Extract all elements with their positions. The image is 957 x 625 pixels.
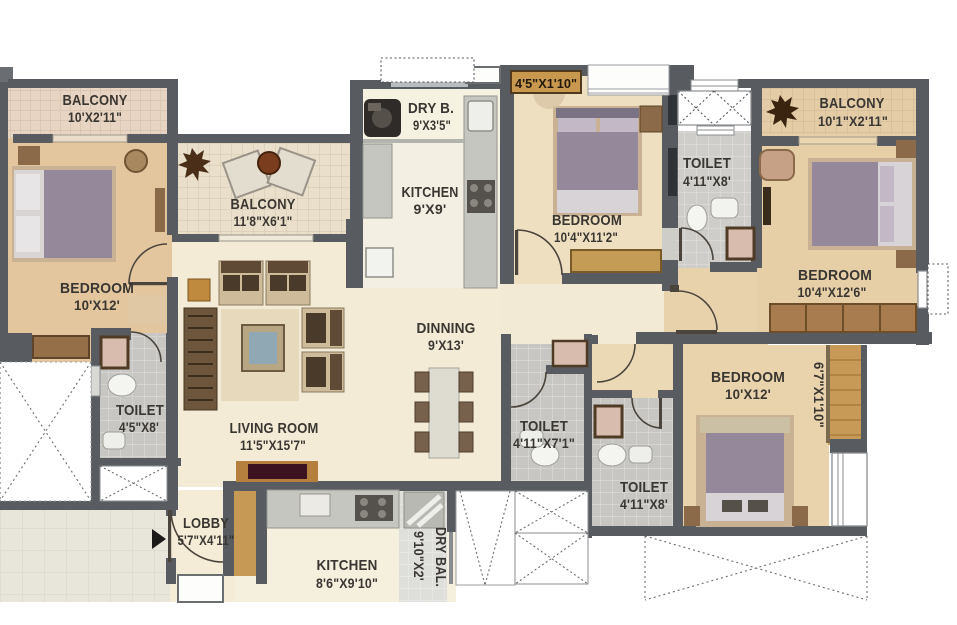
svg-text:TOILET: TOILET xyxy=(620,479,668,496)
svg-text:4'5"X1'10": 4'5"X1'10" xyxy=(515,76,577,91)
svg-text:10'X12': 10'X12' xyxy=(74,298,120,313)
svg-text:LIVING ROOM: LIVING ROOM xyxy=(230,420,319,437)
svg-text:TOILET: TOILET xyxy=(683,155,731,172)
svg-text:9'X13': 9'X13' xyxy=(428,338,464,353)
svg-text:9'X9': 9'X9' xyxy=(414,202,447,217)
svg-text:TOILET: TOILET xyxy=(520,418,568,435)
svg-text:BEDROOM: BEDROOM xyxy=(60,280,134,297)
svg-text:DRY BAL.: DRY BAL. xyxy=(432,527,449,587)
svg-text:5'7"X4'11": 5'7"X4'11" xyxy=(178,533,235,548)
svg-text:10'X12': 10'X12' xyxy=(725,387,771,402)
svg-text:8'6"X9'10": 8'6"X9'10" xyxy=(316,576,378,591)
svg-text:10'4"X12'6": 10'4"X12'6" xyxy=(798,285,867,300)
svg-text:10'X2'11": 10'X2'11" xyxy=(68,110,122,125)
svg-text:4'11"X8': 4'11"X8' xyxy=(620,497,668,512)
svg-text:9'10"X2': 9'10"X2' xyxy=(411,531,426,581)
svg-text:11'8"X6'1": 11'8"X6'1" xyxy=(234,214,293,229)
svg-text:BEDROOM: BEDROOM xyxy=(798,267,872,284)
svg-text:KITCHEN: KITCHEN xyxy=(402,184,459,201)
svg-text:TOILET: TOILET xyxy=(116,402,164,419)
svg-text:4'5"X8': 4'5"X8' xyxy=(119,420,159,435)
svg-text:10'4"X11'2": 10'4"X11'2" xyxy=(554,230,618,245)
svg-text:6'7"X1'10": 6'7"X1'10" xyxy=(811,362,826,428)
svg-text:10'1"X2'11": 10'1"X2'11" xyxy=(818,114,888,129)
svg-text:BEDROOM: BEDROOM xyxy=(552,212,622,229)
svg-text:BALCONY: BALCONY xyxy=(820,95,885,112)
svg-text:4'11"X7'1": 4'11"X7'1" xyxy=(513,436,575,451)
svg-text:DRY B.: DRY B. xyxy=(408,100,454,117)
svg-text:BEDROOM: BEDROOM xyxy=(711,369,785,386)
svg-text:DINNING: DINNING xyxy=(417,320,476,337)
svg-text:9'X3'5": 9'X3'5" xyxy=(413,118,451,133)
svg-text:LOBBY: LOBBY xyxy=(183,515,229,532)
svg-text:KITCHEN: KITCHEN xyxy=(317,557,378,574)
svg-text:BALCONY: BALCONY xyxy=(63,92,128,109)
svg-text:11'5"X15'7": 11'5"X15'7" xyxy=(240,438,306,453)
svg-text:BALCONY: BALCONY xyxy=(231,196,296,213)
svg-text:4'11"X8': 4'11"X8' xyxy=(683,174,731,189)
